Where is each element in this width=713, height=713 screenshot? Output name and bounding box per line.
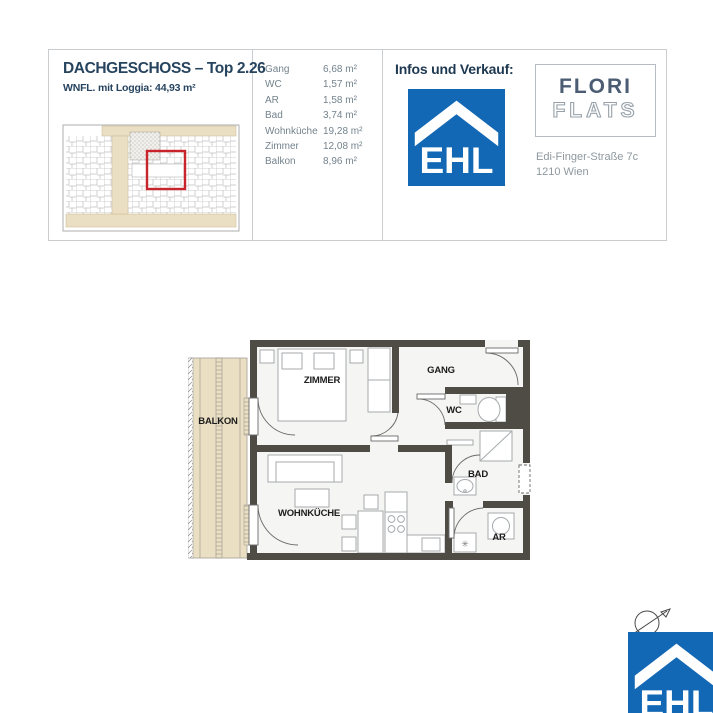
room-label-wc: WC bbox=[446, 405, 462, 416]
room-area-row: Balkon8,96 m² bbox=[265, 154, 371, 169]
room-area-row: Zimmer12,08 m² bbox=[265, 139, 371, 154]
flats-text: FLATS bbox=[536, 99, 655, 123]
room-name: Balkon bbox=[265, 154, 323, 169]
room-label-zimmer: ZIMMER bbox=[304, 375, 341, 386]
room-area: 1,57 m² bbox=[323, 77, 371, 92]
sales-heading: Infos und Verkauf: bbox=[395, 61, 514, 77]
room-area-row: AR1,58 m² bbox=[265, 93, 371, 108]
flori-flats-logo: FLORI FLATS bbox=[535, 64, 656, 137]
ehl-logo: EHL bbox=[408, 89, 505, 186]
room-name: Gang bbox=[265, 62, 323, 77]
room-area: 3,74 m² bbox=[323, 108, 371, 123]
ehl-wordmark: EHL bbox=[628, 683, 713, 713]
address-city: 1210 Wien bbox=[536, 165, 638, 180]
room-label-gang: GANG bbox=[427, 365, 455, 376]
room-area: 1,58 m² bbox=[323, 93, 371, 108]
site-plan bbox=[62, 124, 240, 232]
room-label-ar: AR bbox=[492, 532, 506, 543]
header-divider-2 bbox=[382, 50, 383, 240]
floorplan-sheet: DACHGESCHOSS – Top 2.26 WNFL. mit Loggia… bbox=[0, 0, 713, 713]
unit-subtitle: WNFL. mit Loggia: 44,93 m² bbox=[63, 82, 195, 94]
room-area: 19,28 m² bbox=[323, 124, 371, 139]
room-name: WC bbox=[265, 77, 323, 92]
header-card: DACHGESCHOSS – Top 2.26 WNFL. mit Loggia… bbox=[48, 49, 667, 241]
sales-address: Edi-Finger-Straße 7c 1210 Wien bbox=[536, 150, 638, 180]
flori-text: FLORI bbox=[536, 75, 655, 99]
ehl-wordmark: EHL bbox=[408, 140, 505, 182]
room-name: Zimmer bbox=[265, 139, 323, 154]
appliance-asterisk: ✳ bbox=[461, 539, 469, 549]
room-areas-table: Gang6,68 m² WC1,57 m² AR1,58 m² Bad3,74 … bbox=[265, 62, 371, 170]
header-divider-1 bbox=[252, 50, 253, 240]
balcony-area bbox=[188, 358, 250, 558]
room-name: Wohnküche bbox=[265, 124, 323, 139]
room-area-row: Bad3,74 m² bbox=[265, 108, 371, 123]
room-area-row: Wohnküche19,28 m² bbox=[265, 124, 371, 139]
footer-ehl-logo: EHL bbox=[628, 632, 713, 713]
room-label-wohnkueche: WOHNKÜCHE bbox=[278, 508, 340, 519]
room-area: 6,68 m² bbox=[323, 62, 371, 77]
room-label-balkon: BALKON bbox=[198, 416, 238, 427]
room-name: AR bbox=[265, 93, 323, 108]
unit-title: DACHGESCHOSS – Top 2.26 bbox=[63, 60, 265, 78]
address-street: Edi-Finger-Straße 7c bbox=[536, 150, 638, 165]
room-area-row: Gang6,68 m² bbox=[265, 62, 371, 77]
room-area: 12,08 m² bbox=[323, 139, 371, 154]
room-area-row: WC1,57 m² bbox=[265, 77, 371, 92]
room-area: 8,96 m² bbox=[323, 154, 371, 169]
floor-plan: ✳ bbox=[188, 333, 538, 568]
room-label-bad: BAD bbox=[468, 469, 488, 480]
room-name: Bad bbox=[265, 108, 323, 123]
